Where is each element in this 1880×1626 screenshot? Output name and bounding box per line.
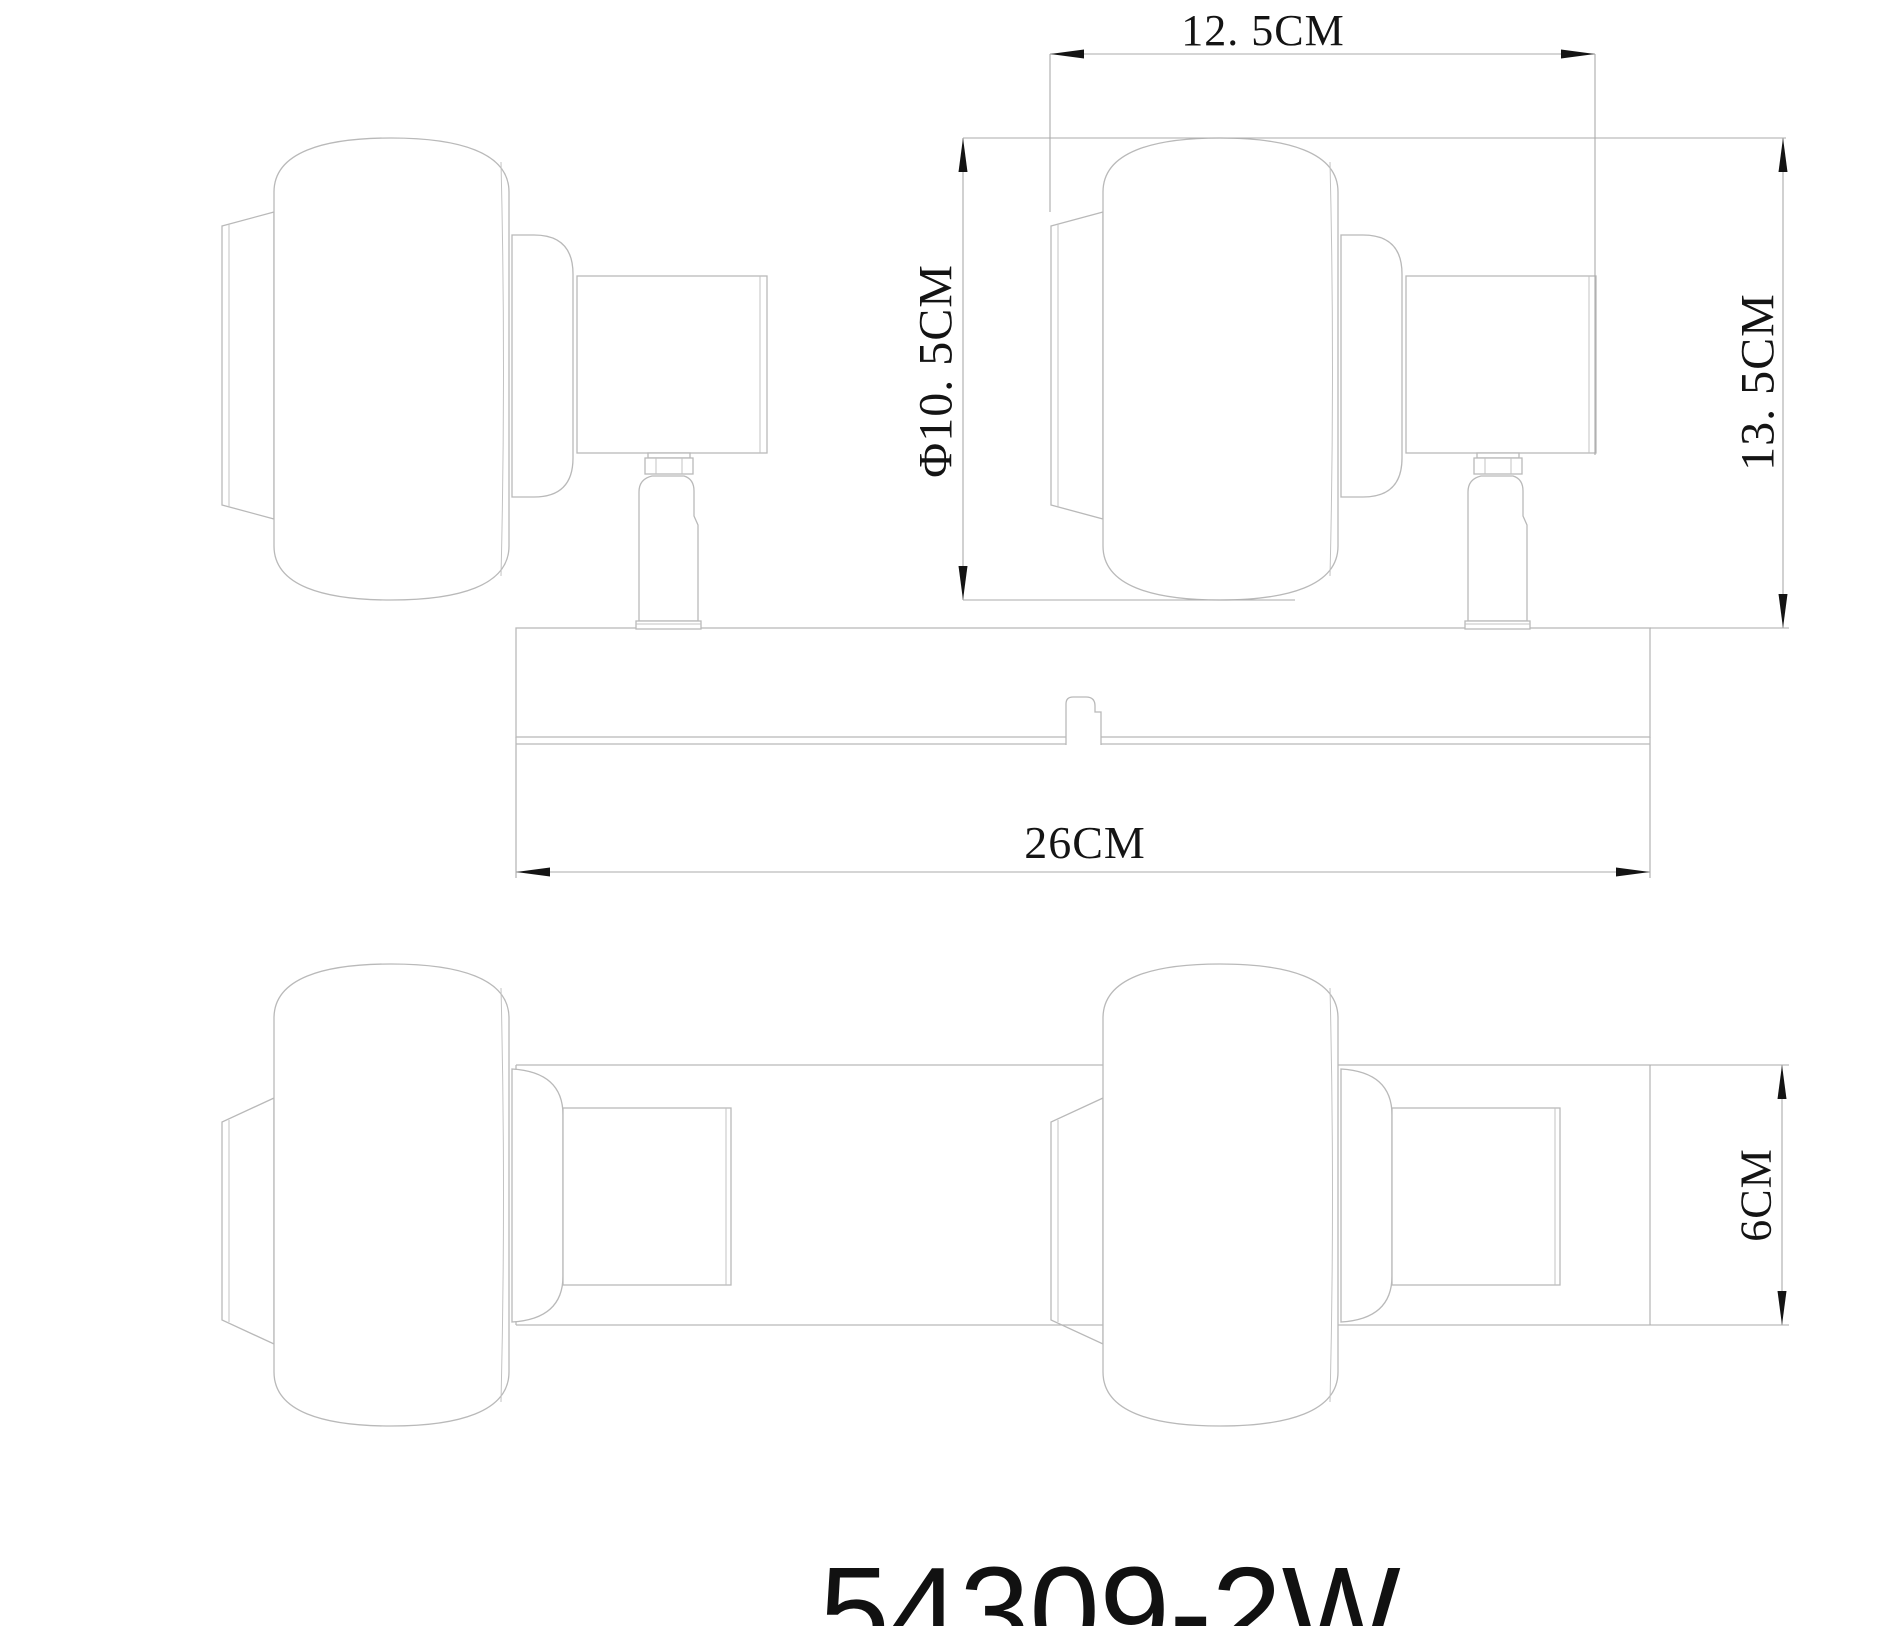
- right-lamp-head-top: [1051, 138, 1596, 629]
- mounting-bar: [516, 628, 1650, 745]
- right-stem-fork: [1474, 458, 1522, 474]
- right-stem-cylinder: [1468, 476, 1527, 621]
- arrowhead-left-icon: [1050, 50, 1084, 59]
- right-shade-egg-front: [1103, 964, 1338, 1426]
- left-back-plate-front: [222, 1098, 274, 1344]
- right-stem-plate: [1477, 453, 1519, 458]
- arrowhead-down-icon: [959, 566, 968, 600]
- left-swivel-stem: [636, 453, 701, 629]
- right-swivel-stem: [1465, 453, 1530, 629]
- left-back-plate: [222, 212, 274, 519]
- left-stem-cylinder: [639, 476, 698, 621]
- left-stem-plate: [648, 453, 690, 458]
- left-lens-ring: [512, 235, 573, 497]
- dimension-bar-height: 6CM: [1650, 1065, 1789, 1325]
- front-view: 6CM: [222, 964, 1789, 1426]
- dimension-bar-length: 26CM: [516, 745, 1650, 878]
- arrowhead-left-icon: [516, 868, 550, 877]
- arrowhead-up-icon: [1778, 1065, 1787, 1099]
- spotlight-technical-drawing: 12. 5CM Φ10. 5CM 13. 5CM 26CM: [0, 0, 1880, 1626]
- technical-drawing-page: 12. 5CM Φ10. 5CM 13. 5CM 26CM: [0, 0, 1880, 1626]
- right-back-plate-front: [1051, 1098, 1103, 1344]
- dim-label-head-depth: 12. 5CM: [1181, 6, 1344, 55]
- right-shade-egg: [1103, 138, 1338, 600]
- arrowhead-right-icon: [1616, 868, 1650, 877]
- right-lamp-head-front: [1103, 964, 1560, 1426]
- left-lens-ring-front: [512, 1069, 563, 1322]
- right-socket-body: [1406, 276, 1596, 453]
- arrowhead-down-icon: [1779, 594, 1788, 628]
- left-stem-fork: [645, 458, 693, 474]
- left-lamp-head-front: [274, 964, 731, 1426]
- left-socket-body: [577, 276, 767, 453]
- product-code-title: 54309-2W: [819, 1541, 1400, 1626]
- dim-label-bar-length: 26CM: [1024, 817, 1146, 868]
- arrowhead-up-icon: [1779, 138, 1788, 172]
- left-stem-base: [636, 621, 701, 629]
- left-lamp-head-top: [222, 138, 767, 629]
- left-socket-face: [563, 1108, 731, 1285]
- dimension-fixture-height: 13. 5CM: [1650, 138, 1789, 628]
- arrowhead-down-icon: [1778, 1291, 1787, 1325]
- arrowhead-right-icon: [1561, 50, 1595, 59]
- right-socket-face: [1392, 1108, 1560, 1285]
- right-back-plate: [1051, 212, 1103, 519]
- dim-label-bar-height: 6CM: [1732, 1148, 1781, 1241]
- arrowhead-up-icon: [959, 138, 968, 172]
- dim-label-shade-diameter: Φ10. 5CM: [910, 264, 963, 478]
- top-view: 12. 5CM Φ10. 5CM 13. 5CM 26CM: [222, 6, 1789, 878]
- dim-label-fixture-height: 13. 5CM: [1732, 293, 1785, 471]
- right-lens-ring: [1341, 235, 1402, 497]
- left-shade-egg: [274, 138, 509, 600]
- right-stem-base: [1465, 621, 1530, 629]
- right-lens-ring-front: [1341, 1069, 1392, 1322]
- left-shade-egg-front: [274, 964, 509, 1426]
